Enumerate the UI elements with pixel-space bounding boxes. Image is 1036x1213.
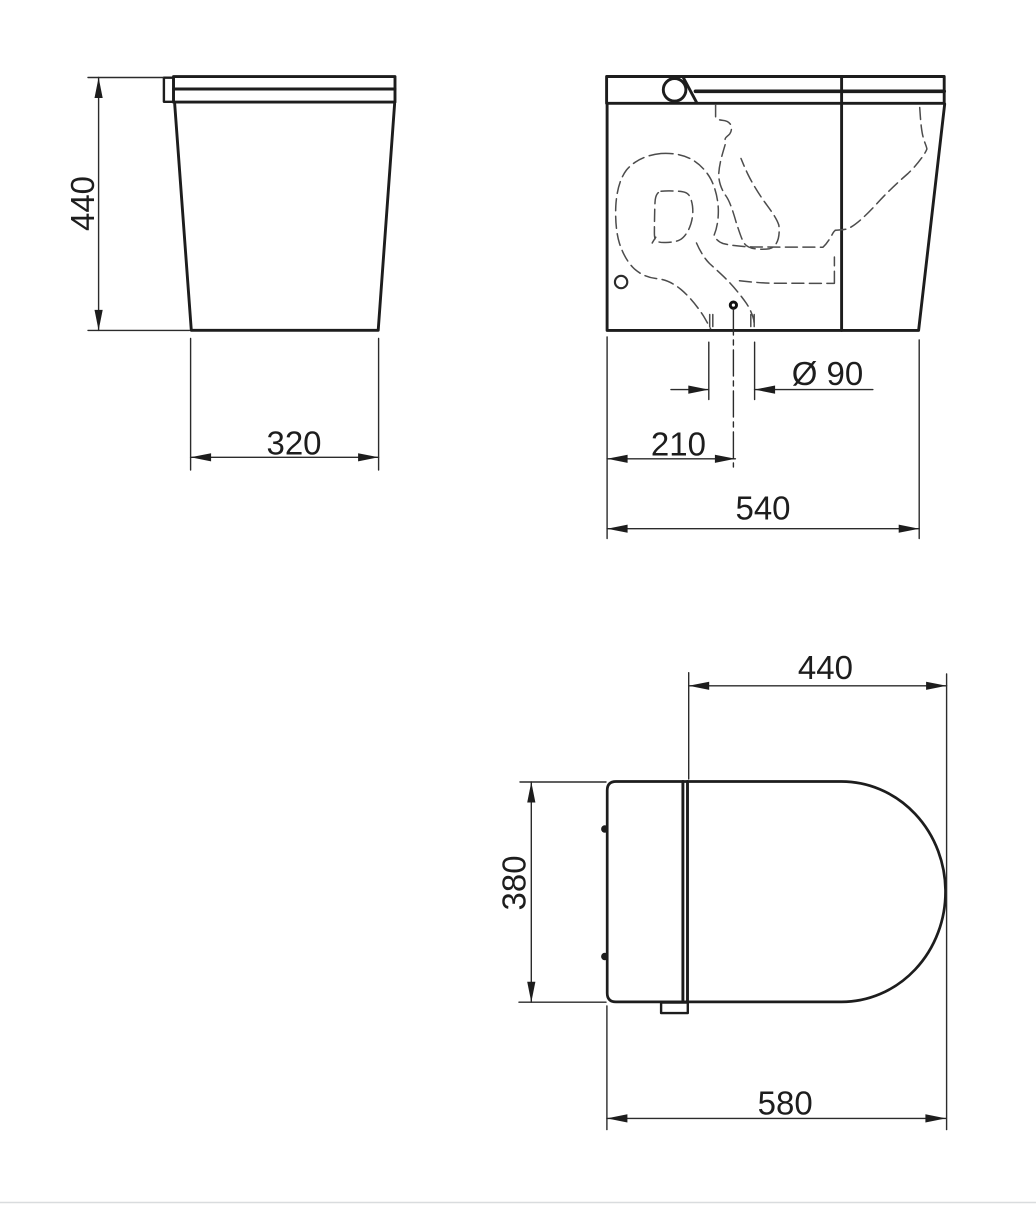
svg-text:580: 580 [758,1085,813,1122]
svg-text:320: 320 [266,425,321,462]
svg-text:Ø 90: Ø 90 [792,355,864,392]
svg-text:440: 440 [798,649,853,686]
svg-text:540: 540 [735,490,790,527]
svg-text:440: 440 [64,176,101,231]
svg-text:210: 210 [651,425,706,462]
svg-text:380: 380 [496,855,533,910]
